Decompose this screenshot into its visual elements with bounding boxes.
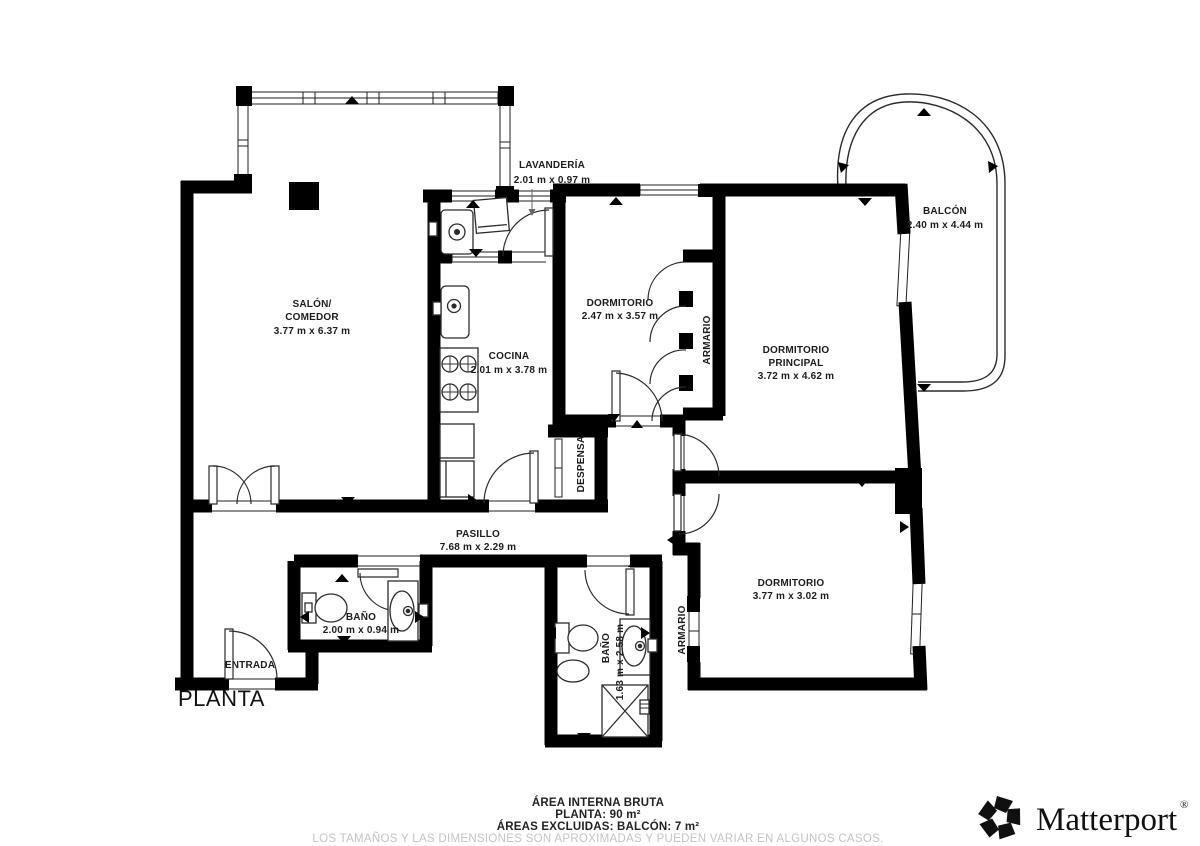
- room-dims-lavanderia: 2.01 m x 0.97 m: [514, 175, 590, 186]
- dormitorio2-window: [911, 576, 923, 654]
- matterport-wordmark: Matterport: [1036, 802, 1177, 838]
- room-label-armario2: ARMARIO: [677, 605, 688, 654]
- fridge-icon: [440, 424, 474, 458]
- toilet2-icon: [555, 623, 598, 653]
- room-dims-cocina: 2.01 m x 3.78 m: [471, 365, 547, 376]
- laundry-appliance-icon: [474, 198, 510, 234]
- matterport-logo: Matterport ®: [977, 796, 1189, 843]
- room-label-bano2: BAÑO: [599, 633, 612, 663]
- room-label-salon-line2: COMEDOR: [285, 312, 339, 323]
- stove-icon: [440, 348, 478, 412]
- room-label-cocina: COCINA: [489, 351, 530, 362]
- matterport-pinwheel-icon: [977, 796, 1025, 843]
- room-dims-dormitorio1: 2.47 m x 3.57 m: [582, 311, 658, 322]
- walls: [175, 181, 927, 745]
- room-dims-salon: 3.77 m x 6.37 m: [274, 326, 350, 337]
- floor-plan-page: LAVANDERÍA 2.01 m x 0.97 m SALÓN/ COMEDO…: [0, 0, 1200, 846]
- room-dims-dormitorio-principal: 3.72 m x 4.62 m: [758, 371, 834, 382]
- walls-path: [175, 181, 927, 745]
- room-dims-bano2: 1.63 m x 2.58 m: [615, 624, 626, 700]
- floor-plan-svg: LAVANDERÍA 2.01 m x 0.97 m SALÓN/ COMEDO…: [0, 0, 1200, 846]
- room-label-pasillo: PASILLO: [456, 529, 500, 540]
- oven-icon: [440, 461, 474, 497]
- footer: ÁREA INTERNA BRUTA PLANTA: 90 m² ÁREAS E…: [312, 796, 883, 845]
- room-label-bano1: BAÑO: [346, 610, 376, 623]
- balcony-door-window: [897, 226, 910, 306]
- bidet-icon: [557, 660, 589, 682]
- balcony-railing: [838, 94, 1005, 391]
- footer-planta-line: PLANTA: 90 m²: [555, 809, 640, 821]
- matterport-registered-mark: ®: [1180, 799, 1188, 811]
- balcony-railing-outer: [838, 94, 1005, 391]
- room-dims-balcon: 2.40 m x 4.44 m: [907, 220, 983, 231]
- room-label-dormitorio-principal-line1: DORMITORIO: [763, 345, 830, 356]
- room-label-armario1: ARMARIO: [702, 315, 713, 364]
- balcony-railing-inner: [846, 102, 997, 382]
- footer-disclaimer: LOS TAMAÑOS Y LAS DIMENSIONES SON APROXI…: [312, 832, 883, 845]
- room-dims-bano1: 2.00 m x 0.94 m: [323, 625, 399, 636]
- plan-title: PLANTA: [178, 686, 265, 711]
- room-label-dormitorio1: DORMITORIO: [587, 298, 654, 309]
- room-label-entrada: ENTRADA: [225, 660, 275, 671]
- room-label-lavanderia: LAVANDERÍA: [519, 158, 585, 171]
- footer-excluded-line: ÁREAS EXCLUIDAS: BALCÓN: 7 m²: [497, 820, 700, 833]
- room-label-despensa: DESPENSA: [576, 436, 587, 493]
- room-label-salon-line1: SALÓN/: [293, 297, 332, 310]
- room-dims-dormitorio2: 3.77 m x 3.02 m: [753, 591, 829, 602]
- room-label-dormitorio2: DORMITORIO: [758, 578, 825, 589]
- footer-area-line: ÁREA INTERNA BRUTA: [532, 796, 664, 809]
- room-label-dormitorio-principal-line2: PRINCIPAL: [769, 358, 824, 369]
- room-dims-pasillo: 7.68 m x 2.29 m: [440, 542, 516, 553]
- room-label-balcon: BALCÓN: [923, 204, 967, 217]
